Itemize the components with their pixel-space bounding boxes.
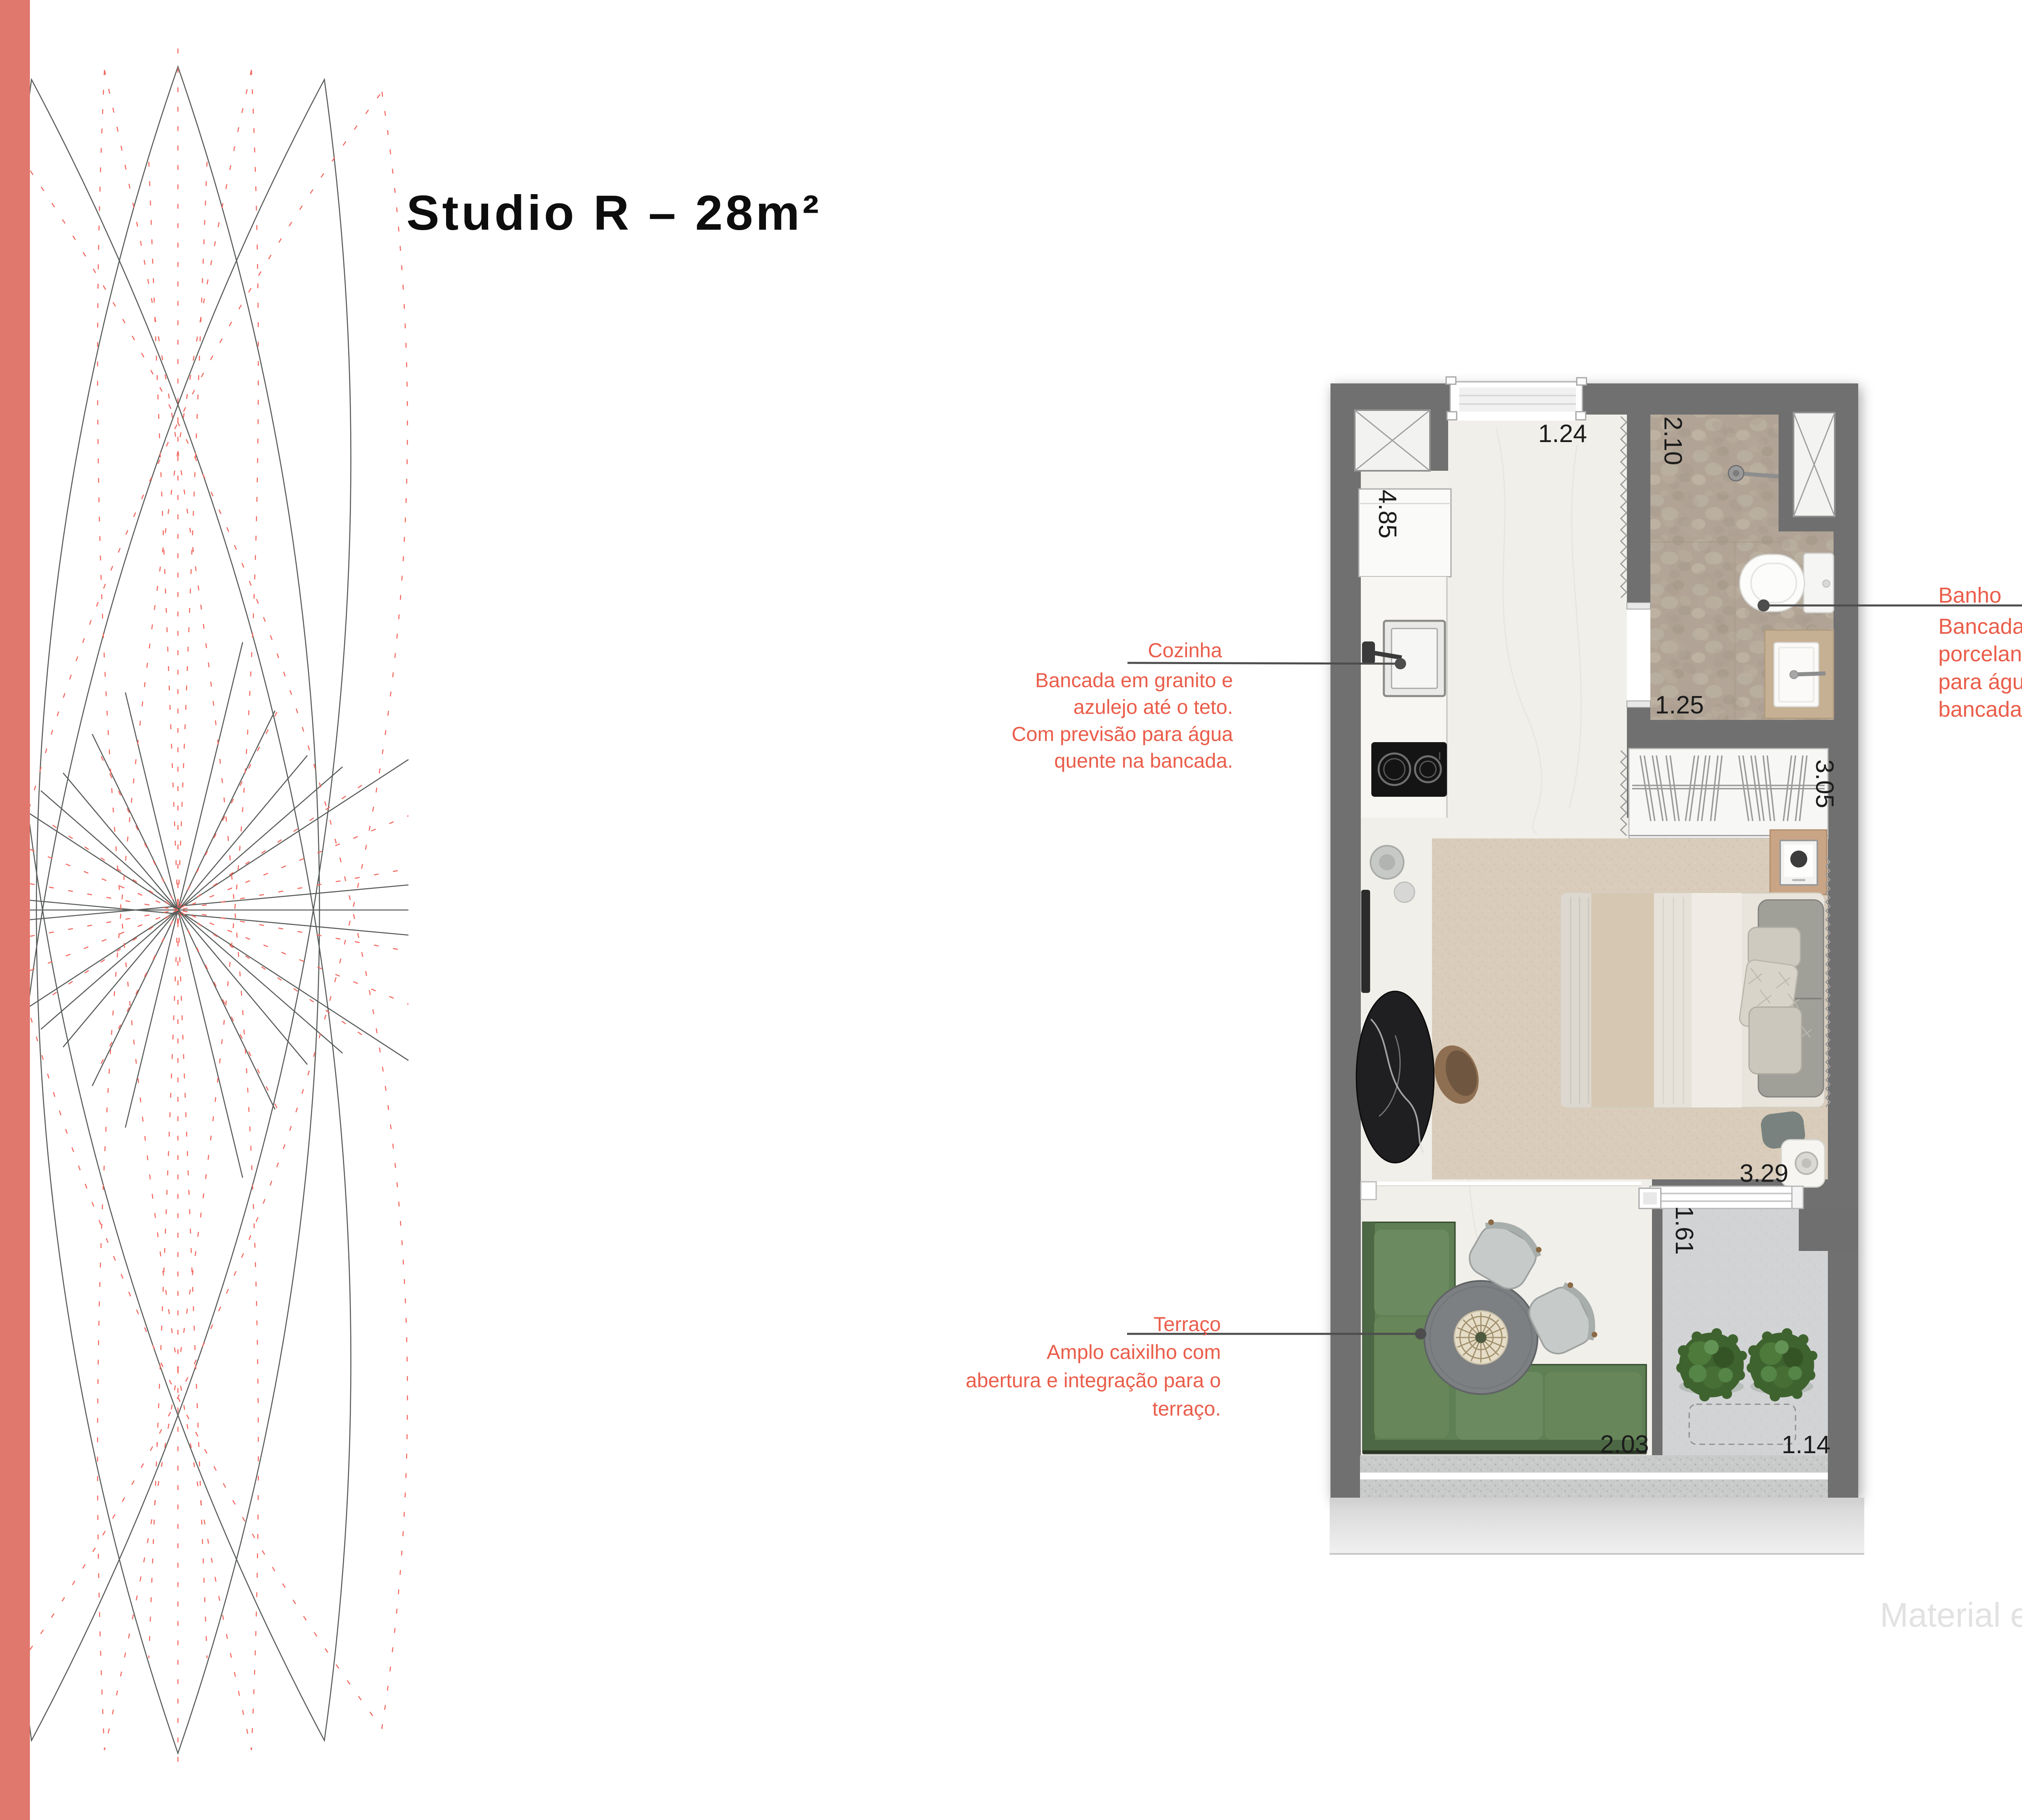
- svg-text:porcelanato com previsão: porcelanato com previsão: [1938, 642, 2022, 666]
- svg-text:Cozinha: Cozinha: [1148, 639, 1223, 662]
- svg-text:Com previsão para água: Com previsão para água: [1011, 723, 1233, 745]
- svg-text:Studio R – 28m²: Studio R – 28m²: [406, 185, 822, 240]
- svg-text:Banho: Banho: [1938, 583, 2001, 607]
- svg-text:bancada.: bancada.: [1938, 697, 2022, 722]
- svg-text:para água quente na: para água quente na: [1938, 670, 2022, 694]
- svg-text:2.10: 2.10: [1659, 417, 1687, 466]
- svg-text:2.03: 2.03: [1600, 1431, 1649, 1458]
- svg-text:1.61: 1.61: [1670, 1206, 1698, 1255]
- svg-text:4.85: 4.85: [1373, 490, 1401, 539]
- svg-text:1.25: 1.25: [1655, 691, 1704, 719]
- svg-text:Terraço: Terraço: [1153, 1313, 1221, 1335]
- svg-text:3.05: 3.05: [1810, 760, 1838, 808]
- svg-text:Material em desenvolvimento: Material em desenvolvimento: [1880, 1596, 2022, 1634]
- svg-text:abertura e integração para o: abertura e integração para o: [966, 1369, 1221, 1392]
- svg-text:Bancada em granito e: Bancada em granito e: [1035, 669, 1233, 692]
- svg-text:quente na bancada.: quente na bancada.: [1054, 749, 1233, 772]
- svg-text:3.29: 3.29: [1740, 1160, 1789, 1187]
- svg-text:terraço.: terraço.: [1152, 1397, 1221, 1420]
- svg-text:Amplo caixilho com: Amplo caixilho com: [1047, 1341, 1221, 1363]
- svg-text:1.14: 1.14: [1782, 1431, 1831, 1459]
- svg-text:1.24: 1.24: [1538, 420, 1587, 448]
- svg-text:azulejo até o teto.: azulejo até o teto.: [1073, 696, 1233, 718]
- svg-text:Bancada e piso em: Bancada e piso em: [1938, 614, 2022, 639]
